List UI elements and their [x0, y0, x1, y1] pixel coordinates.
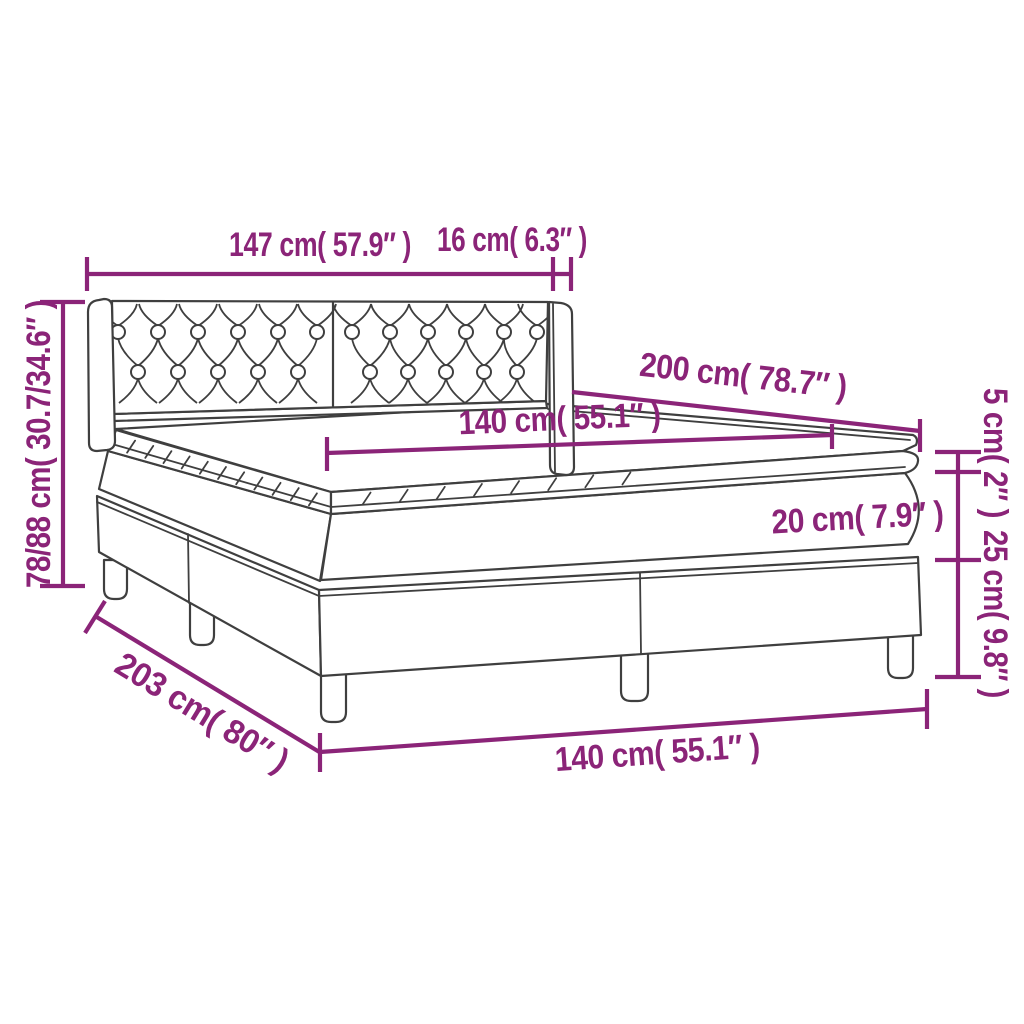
base-height-label: 25 cm( 9.8″ ) — [976, 530, 1014, 698]
total-height-label: 78/88 cm( 30.7/34.6″ ) — [20, 300, 58, 588]
mattress-height-label: 20 cm( 7.9″ ) — [771, 495, 945, 542]
topper-height-label: 5 cm( 2″ ) — [976, 388, 1014, 518]
dimension-diagram: 147 cm( 57.9″ ) 16 cm( 6.3″ ) 78/88 cm( … — [0, 0, 1024, 1024]
dim-height-stack-line — [935, 452, 981, 677]
headboard-depth-label: 16 cm( 6.3″ ) — [437, 221, 587, 259]
bed-dimension-figure: 147 cm( 57.9″ ) 16 cm( 6.3″ ) 78/88 cm( … — [0, 0, 1024, 1024]
headboard-width-label: 147 cm( 57.9″ ) — [229, 226, 411, 264]
base-length-label: 203 cm( 80″ ) — [108, 645, 295, 780]
bed-length-label: 200 cm( 78.7″ ) — [638, 346, 849, 407]
